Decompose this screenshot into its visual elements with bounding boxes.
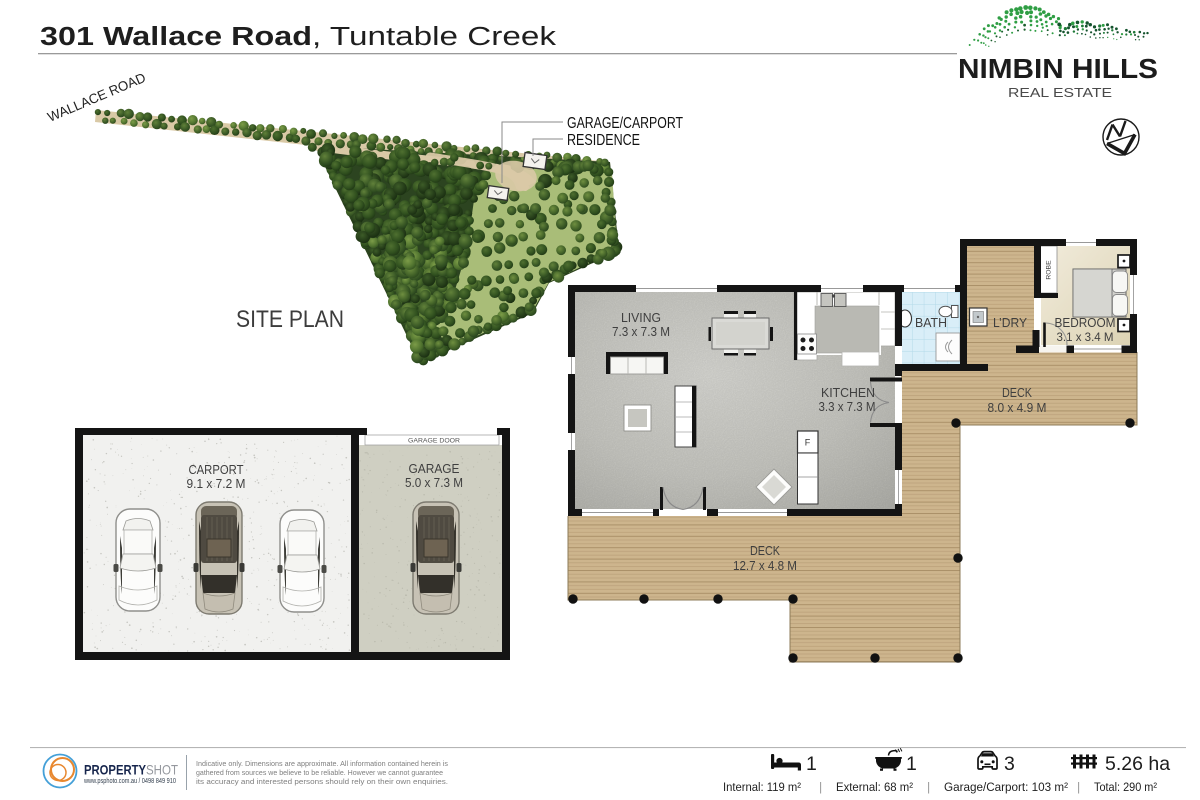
svg-text:301 Wallace Road: 301 Wallace Road xyxy=(40,23,312,51)
svg-text:, Tuntable Creek: , Tuntable Creek xyxy=(312,23,556,51)
svg-text:1: 1 xyxy=(806,753,817,775)
svg-text:9.1 x 7.2 M: 9.1 x 7.2 M xyxy=(187,476,246,491)
svg-text:SHOT: SHOT xyxy=(146,762,178,778)
svg-text:3.3 x 7.3 M: 3.3 x 7.3 M xyxy=(819,399,876,414)
svg-text:Internal: 119 m²: Internal: 119 m² xyxy=(723,780,801,794)
svg-text:REAL ESTATE: REAL ESTATE xyxy=(1008,86,1112,100)
svg-text:LIVING: LIVING xyxy=(621,310,661,325)
svg-text:5.26 ha: 5.26 ha xyxy=(1105,753,1170,775)
svg-text:1: 1 xyxy=(906,753,917,775)
svg-text:3.1 x 3.4 M: 3.1 x 3.4 M xyxy=(1057,330,1114,344)
svg-text:|: | xyxy=(819,780,822,794)
svg-text:KITCHEN: KITCHEN xyxy=(821,385,875,400)
svg-text:3: 3 xyxy=(1004,753,1015,775)
svg-text:BATH: BATH xyxy=(915,316,947,330)
svg-text:External: 68 m²: External: 68 m² xyxy=(836,780,913,794)
svg-text:Total: 290 m²: Total: 290 m² xyxy=(1094,780,1157,794)
svg-text:DECK: DECK xyxy=(1002,385,1032,400)
svg-text:GARAGE DOOR: GARAGE DOOR xyxy=(408,438,461,444)
svg-text:5.0 x 7.3 M: 5.0 x 7.3 M xyxy=(405,475,463,490)
svg-text:BEDROOM: BEDROOM xyxy=(1055,316,1116,330)
svg-text:CARPORT: CARPORT xyxy=(189,462,244,477)
svg-text:7.3 x 7.3 M: 7.3 x 7.3 M xyxy=(612,324,670,339)
svg-text:8.0 x 4.9 M: 8.0 x 4.9 M xyxy=(988,400,1047,415)
svg-text:GARAGE: GARAGE xyxy=(409,461,460,476)
svg-text:NIMBIN HILLS: NIMBIN HILLS xyxy=(958,53,1158,84)
svg-text:12.7 x 4.8 M: 12.7 x 4.8 M xyxy=(733,558,797,573)
svg-text:RESIDENCE: RESIDENCE xyxy=(567,132,640,149)
svg-text:Garage/Carport: 103 m²: Garage/Carport: 103 m² xyxy=(944,780,1068,794)
svg-text:F: F xyxy=(805,438,811,448)
svg-text:ROBE: ROBE xyxy=(1046,260,1053,280)
svg-text:|: | xyxy=(1077,780,1080,794)
svg-text:www.psphoto.com.au / 0498 849: www.psphoto.com.au / 0498 849 910 xyxy=(83,778,176,785)
svg-text:GARAGE/CARPORT: GARAGE/CARPORT xyxy=(567,115,683,132)
svg-text:Indicative only. Dimensions a: Indicative only. Dimensions are approxim… xyxy=(196,759,448,768)
svg-text:L’DRY: L’DRY xyxy=(993,316,1028,330)
svg-text:its accuracy and interested pe: its accuracy and interested persons shou… xyxy=(196,777,448,786)
svg-text:DECK: DECK xyxy=(750,543,780,558)
svg-text:SITE PLAN: SITE PLAN xyxy=(236,306,344,333)
svg-text:gathered from sources we belie: gathered from sources we believe to be r… xyxy=(196,768,443,777)
svg-text:|: | xyxy=(927,780,930,794)
svg-text:PROPERTY: PROPERTY xyxy=(84,762,147,778)
